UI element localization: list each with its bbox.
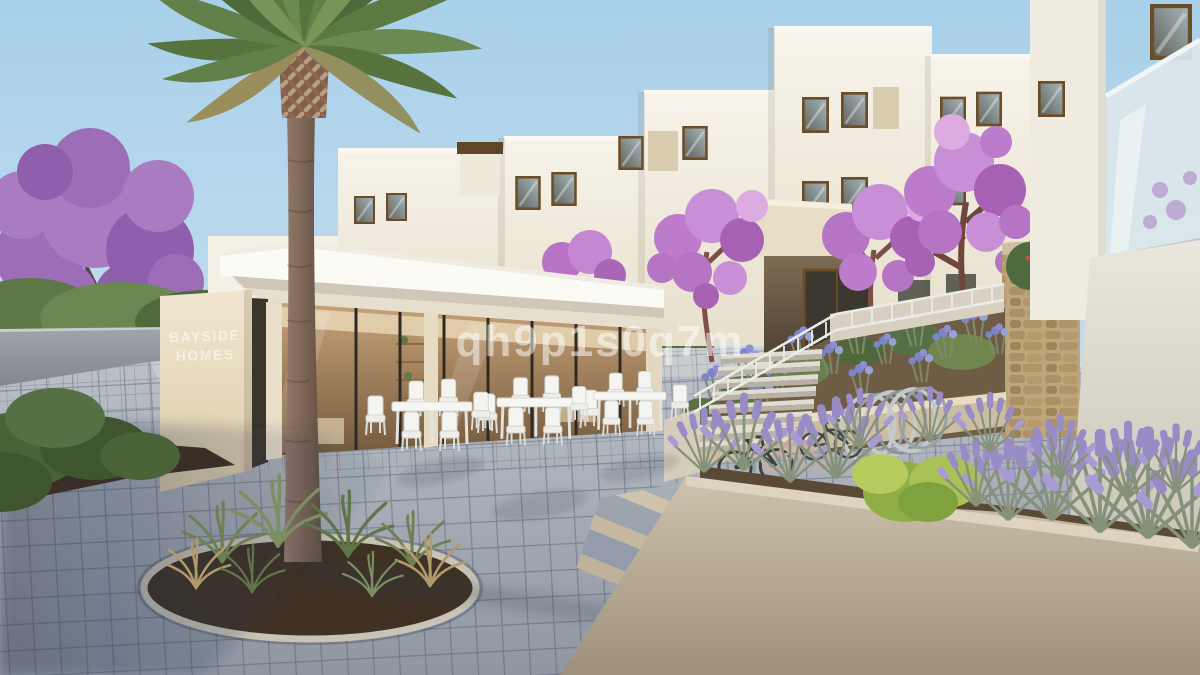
chimney (457, 142, 503, 196)
window (1038, 81, 1065, 117)
scene-canvas: BAYSIDE HOMES (0, 0, 1200, 675)
render-image: BAYSIDE HOMES (0, 0, 1200, 675)
bayside-homes-sign-line2: HOMES (176, 346, 235, 364)
window (386, 193, 407, 221)
watermark-text: qh9p1s0q7m (456, 317, 745, 366)
window (976, 92, 1002, 127)
window (682, 126, 708, 160)
window (841, 92, 868, 128)
window (354, 196, 375, 224)
window (802, 97, 829, 133)
accent-panel (648, 131, 678, 171)
accent-panel (873, 87, 899, 129)
window (551, 172, 577, 206)
window (515, 176, 541, 210)
bayside-homes-sign-line1: BAYSIDE (169, 327, 241, 345)
window (618, 136, 644, 170)
